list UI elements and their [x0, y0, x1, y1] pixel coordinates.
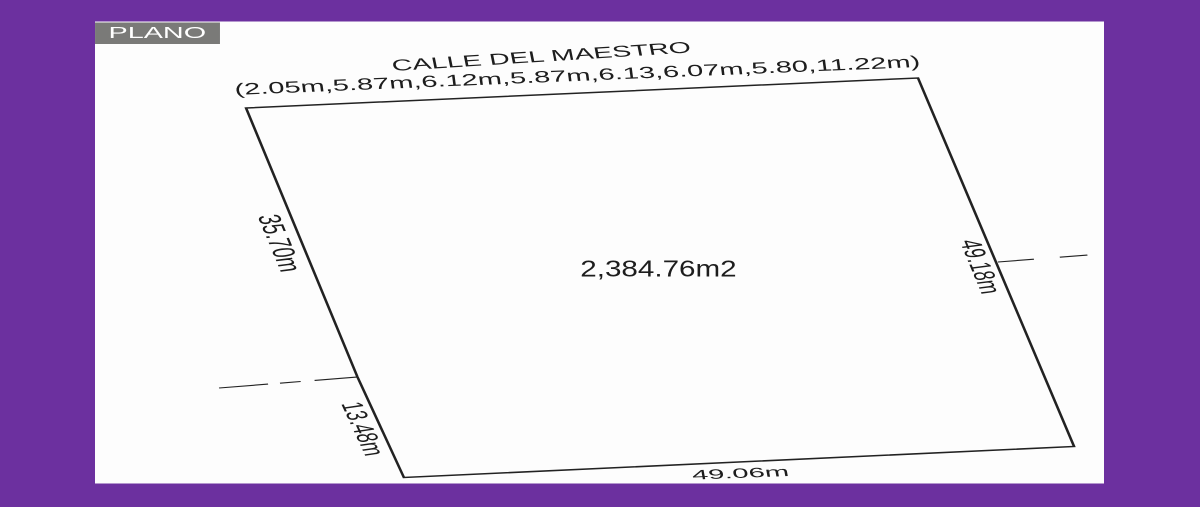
- svg-text:PLANO: PLANO: [109, 24, 207, 42]
- svg-text:2,384.76m2: 2,384.76m2: [580, 255, 736, 281]
